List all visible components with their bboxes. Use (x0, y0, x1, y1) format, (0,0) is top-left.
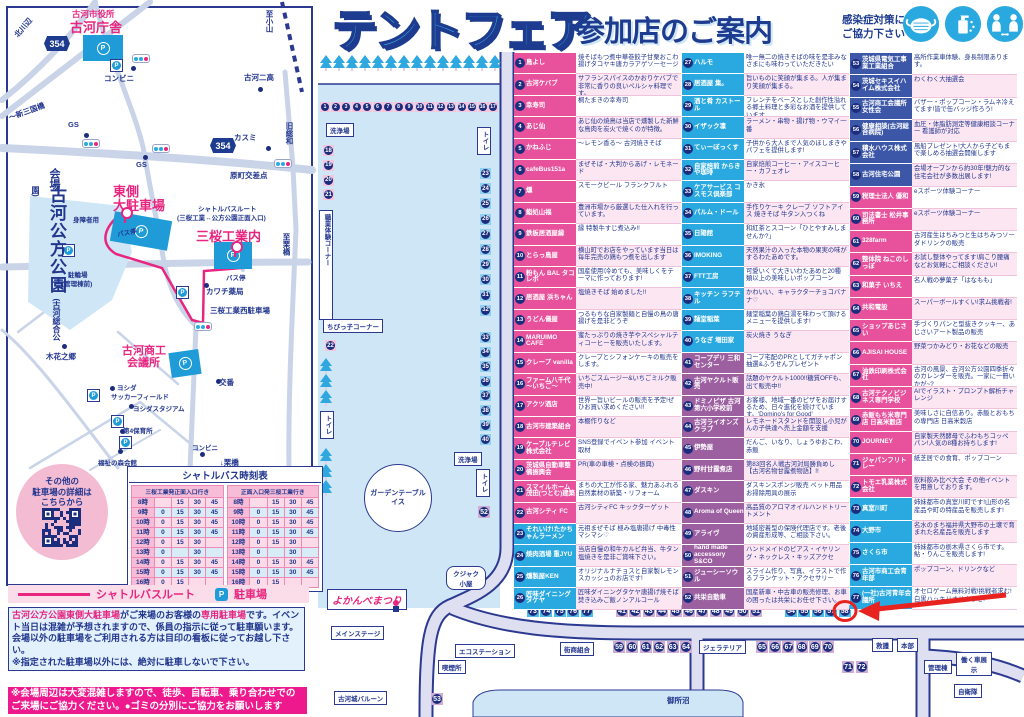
venue-label: 街商組合 (560, 642, 594, 656)
store-name-text: Aroma of Queen (694, 509, 744, 516)
store-name-text: 和菓子 いちえ (862, 283, 902, 290)
store-description: スモークビール フランクフルト (576, 181, 681, 202)
stall-marker: 3 (341, 102, 351, 112)
legend-parking-label: 駐車場 (234, 586, 267, 602)
store-name: 75さくら市 (850, 543, 912, 565)
store-name-text: ショップあじさい (862, 324, 912, 337)
timetable-minute: 15 (171, 517, 188, 527)
store-number-badge: 28 (683, 80, 693, 90)
timetable-minute: 15 (267, 567, 284, 577)
store-description: バザー・ポップコーン・ラムネ冷えてます!皆で缶バッジ作ろう! (912, 98, 1017, 120)
stall-marker: 31 (480, 290, 491, 301)
store-name-text: とらっ鳥屋 (526, 253, 558, 260)
store-row: 48Aroma of Queen高品質のアロマオイルハンドトリートメント (682, 503, 849, 524)
store-name: 7燻 (514, 181, 576, 202)
timetable-minute: 45 (301, 557, 318, 567)
timetable-minute: 30 (284, 497, 301, 507)
store-description: 匠味ダイニングタケヤ唐揚げ焼そば焚き込みご飯ノンアルコール (576, 588, 681, 609)
store-name-text: 居酒屋 集。 (694, 81, 728, 88)
venue-label: 洗浄場 (326, 123, 354, 137)
store-name-text: 油鉄印刷株式会社 (862, 369, 912, 382)
timetable-minute: 45 (205, 557, 222, 567)
timetable-hour: 13時 (132, 547, 154, 557)
store-name-text: 鉄板居酒屋縁 (526, 231, 564, 238)
timetable-minute: 15 (267, 507, 284, 517)
store-number-badge: 12 (515, 294, 525, 304)
timetable-minute: 45 (301, 527, 318, 537)
store-number-badge: 67 (851, 370, 861, 380)
store-name: 4あじ仙 (514, 117, 576, 138)
store-number-badge: 56 (851, 125, 861, 135)
timetable-minute: 30 (188, 547, 205, 557)
timetable-minute: 0 (154, 507, 171, 517)
store-row: 66AJISAI HOUSE野菜つかみどり・お花などの販売 (850, 342, 1017, 364)
timetable-row: 9時0153045 (132, 507, 223, 517)
store-description: 古河シティFC キックターゲット (576, 503, 681, 524)
timetable-minute (301, 547, 318, 557)
stall-marker: 35 (480, 361, 491, 372)
stall-marker: 25 (480, 198, 491, 209)
store-row: 39麺堂稲葉麺堂稲葉の鶏白湯を味わって頂けるメニューを提供します! (682, 310, 849, 331)
stall-marker: 60 (626, 641, 638, 653)
store-number-badge: 46 (683, 465, 693, 475)
store-row: 61328farm古河産生はちみつと生はちみつソーダドリンクの販売 (850, 231, 1017, 253)
store-description: かわいい、キャラクターチョコバナナ♡ (744, 288, 849, 309)
stall-marker: 37 (480, 390, 491, 401)
shuttle-bus-timetable: シャトルバス時刻表 三桜工業発正面入口行き8時1530459時015304510… (127, 466, 323, 592)
timetable-minute: 30 (188, 507, 205, 517)
qr-caption: その他の 駐車場の詳細は こちらから (32, 476, 92, 508)
store-number-badge: 73 (851, 504, 861, 514)
stall-marker: 22 (325, 340, 336, 351)
store-description: 姉妹都市の栃木県さくら市です。鮎・りんごを販売します! (912, 543, 1017, 565)
store-description: 子供から大人まで人気のほしまきやパフェを提供します! (744, 139, 849, 160)
store-name-text: 真室川町 (862, 506, 888, 513)
store-name-text: トモエ乳業株式会社 (862, 480, 912, 493)
store-name-text: 古河市建築組合 (526, 424, 571, 431)
store-name: 20茨城県自動車整備振興会 (514, 460, 576, 481)
stall-marker: 72 (856, 661, 868, 673)
store-number-badge: 8 (515, 208, 525, 218)
store-description: お客様、地域一番のピザをお届けするため、日々進化を続けています。'Domino'… (744, 396, 849, 417)
store-number-badge: 68 (851, 393, 861, 403)
store-description: あじ仙の焼鳥は当店で燻製した新鮮な鳥肉を炭火で焼くのが特徴。 (576, 117, 681, 138)
timetable-header: 正面入口発三桜工業行き (228, 486, 319, 497)
store-number-badge: 6 (515, 165, 525, 175)
store-name: 52共栄自動車 (682, 588, 744, 609)
timetable-minute (205, 537, 222, 547)
stall-marker: 71 (842, 661, 854, 673)
stall-marker: 69 (809, 641, 821, 653)
store-name: 12居酒屋 浜ちゃん (514, 288, 576, 309)
store-description: 高所作業車体験、身長制限あります。 (912, 53, 1017, 75)
store-description: かき氷 (744, 181, 849, 202)
store-description: 炭火焼き うなぎ (744, 331, 849, 352)
timetable-minute (267, 547, 284, 557)
store-number-badge: 4 (515, 122, 525, 132)
store-number-badge: 75 (851, 548, 861, 558)
timetable-hour: 12時 (228, 537, 250, 547)
store-name: 65ショップあじさい (850, 320, 912, 342)
store-number-badge: 3 (515, 101, 525, 111)
timetable-minute: 0 (154, 567, 171, 577)
stall-marker: 40 (480, 434, 491, 445)
store-number-badge: 63 (851, 281, 861, 291)
store-name: 59税理士法人 優和 (850, 187, 912, 209)
store-description: お試し整体やってます!肩こり腰痛などお気軽にご相談ください! (912, 253, 1017, 275)
store-number-badge: 64 (851, 304, 861, 314)
store-description: 古河の風景、古河公方公園四季折々のカレンダーを販売。一家に一冊いかが~? (912, 365, 1017, 387)
store-name-text: 古河市商工会青年部 (862, 569, 912, 582)
poi-dot (266, 146, 271, 151)
store-name: 34パルム・ドール (682, 203, 744, 224)
timetable-row: 11時0153045 (132, 527, 223, 537)
store-name-text: てぃーぼっくす (694, 145, 739, 152)
crowd-note: ※会場周辺は大変混雑しますので、徒歩、自転車、乗り合わせでの ご来場にご協力くだ… (8, 687, 307, 714)
venue-label: 自衛隊 (954, 684, 982, 698)
store-number-badge: 9 (515, 229, 525, 239)
store-number-badge: 37 (683, 272, 693, 282)
venue-label: 職業体験コーナー (319, 210, 333, 320)
stall-marker: 8 (394, 102, 404, 112)
store-description: 麺堂稲葉の鶏白湯を味わって頂けるメニューを提供します! (744, 310, 849, 331)
stall-marker: 23 (480, 168, 491, 179)
store-row: 18古河市建築組合本棚作りなど (514, 417, 681, 438)
store-name: 68古河テクノビジネス専門学校 (850, 387, 912, 409)
timetable-minute: 15 (171, 507, 188, 517)
store-name: 45伊勢屋 (682, 438, 744, 459)
timetable-row: 15時0153045 (132, 567, 223, 577)
store-description: フレンチをベースとした創作性溢れる郷土料理と多彩なお酒を提供しています (744, 96, 849, 117)
store-description: SNS登録でイベント参加 イベント取材 (576, 438, 681, 459)
store-description: レモネードスタンドを開設し小児がんの子供達へ売上金額を支援 (744, 417, 849, 438)
store-description: オセロゲーム無料対戦!挑戦者求む!白黒ハッキリさせようぜ! (912, 587, 1017, 609)
timetable-minute: 30 (284, 567, 301, 577)
timetable-row: 13時030 (132, 547, 223, 557)
timetable-minute: 30 (284, 517, 301, 527)
store-name: 37FTT工房 (682, 267, 744, 288)
stall-marker: 29 (480, 259, 491, 270)
timetable-hour: 8時 (132, 497, 154, 507)
timetable-minute: 45 (205, 567, 222, 577)
venue-label: 古河城バルーン (334, 691, 387, 705)
timetable-minute: 45 (301, 567, 318, 577)
timetable-minute: 0 (249, 507, 266, 517)
timetable-hour: 11時 (228, 527, 250, 537)
venue-label: 救護 (872, 638, 893, 652)
timetable-minute: 0 (249, 517, 266, 527)
map-legend: シャトルバスルート P 駐車場 (8, 585, 309, 603)
store-number-badge: 42 (683, 379, 693, 389)
store-name: 71ジャパンフリトレー (850, 454, 912, 476)
stall-marker: 17 (488, 102, 498, 112)
stall-marker: 19 (323, 160, 334, 171)
store-description: つるもちな自家製麺と自慢の鳥の唐揚げを是非どうぞ (576, 310, 681, 331)
store-number-badge: 60 (851, 214, 861, 224)
store-description: 美味しさに自信あり。赤飯とおもちの専門店 日高米穀店 (912, 409, 1017, 431)
store-name: 13うどん儀屋 (514, 310, 576, 331)
store-name-text: 積水ハウス株式会社 (862, 146, 912, 159)
store-description: 焼そばもつ煮中華巻餃子甘栗おこわ揚げタコヤキ唐カラアゲソーセージ (576, 53, 681, 74)
traffic-signal-icon (152, 144, 170, 153)
store-row: 19ケーブルテレビ株式会社SNS登録でイベント参加 イベント取材 (514, 438, 681, 459)
timetable-title: シャトルバス時刻表 (129, 468, 321, 483)
store-name: 67油鉄印刷株式会社 (850, 365, 912, 387)
store-description: eスポーツ体験コーナー (912, 209, 1017, 231)
store-name-text: 焼肉酒場 重JYU (526, 552, 572, 559)
store-name-text: アライヴ (694, 531, 720, 538)
timetable-minute (249, 497, 266, 507)
store-row: 64共和電設スーパーボールすくい!求ム挑戦者! (850, 298, 1017, 320)
timetable-minute: 0 (249, 557, 266, 567)
store-row: 59税理士法人 優和eスポーツ体験コーナー (850, 187, 1017, 209)
festival-mascot (393, 600, 399, 613)
store-name: 25燻製屋KEN (514, 567, 576, 588)
store-description: クレープとシフォンケーキの販売をします。 (576, 353, 681, 374)
timetable-row: 15時0153045 (228, 567, 319, 577)
store-name-text: MARUIMO CAFE (526, 335, 576, 348)
store-name-text: 古河ヤクルト販売 (694, 378, 744, 391)
timetable-minute: 30 (188, 567, 205, 577)
timetable-hour: 10時 (132, 517, 154, 527)
store-description: 自家焙煎コーヒー・アイスコーヒー・カフェオレ (744, 160, 849, 181)
stall-marker: 61 (640, 641, 652, 653)
timetable-minute (205, 547, 222, 557)
store-name: 42古河ヤクルト販売 (682, 374, 744, 395)
store-name: 21スマイルホーム茂田(つとむ)建築 (514, 481, 576, 502)
store-name: 39麺堂稲葉 (682, 310, 744, 331)
store-description: 風船プレゼント!大人から子どもまで楽しめる抽選会開催します (912, 142, 1017, 164)
store-name: 43ドミノピザ 古河第六小学校前 (682, 396, 744, 417)
store-name: 26匠味ダイニングタケヤ (514, 588, 576, 609)
store-name: 6cafeBus151a (514, 160, 576, 181)
store-row: 2古河ケバブサフランスパイスのかおりケバブで非常に香りの良いペルシャ料理です。 (514, 74, 681, 95)
store-row: 77(一社)古河青年会議所オセロゲーム無料対戦!挑戦者求む!白黒ハッキリさせよう… (850, 587, 1017, 609)
store-row: 45伊勢屋だんご、いなり、しょうゆおこわ、赤飯 (682, 438, 849, 459)
store-number-badge: 18 (515, 422, 525, 432)
stall-marker: 27 (480, 229, 491, 240)
store-number-badge: 7 (515, 187, 525, 197)
store-name-text: AJISAI HOUSE (862, 350, 907, 357)
timetable-row: 14時0153045 (132, 557, 223, 567)
store-name: 27ハルモ (682, 53, 744, 74)
store-description: オリジナルナチョスと自家製レモンスカッシュのお店です! (576, 567, 681, 588)
stall-marker: 70 (822, 641, 834, 653)
timetable-minute: 30 (284, 547, 301, 557)
timetable-hour: 15時 (228, 567, 250, 577)
store-description: スーパーボールすくい!求ム挑戦者! (912, 298, 1017, 320)
store-name-text: 居酒屋 浜ちゃん (526, 295, 573, 302)
store-name-text: あじ仙 (526, 124, 545, 131)
store-row: 50hand made accessory S&COハンドメイドのピアス・イヤリ… (682, 545, 849, 566)
timetable-minute (154, 497, 171, 507)
store-number-badge: 44 (683, 422, 693, 432)
page-subtitle: 参加店のご案内 (576, 8, 772, 50)
store-description: 名水のまち福井県大野市の土壌で育まれた名産品を販売します (912, 521, 1017, 543)
store-name-text: 大野市 (862, 528, 881, 535)
traffic-signal-icon (82, 139, 100, 148)
store-number-badge: 47 (683, 486, 693, 496)
store-name: 28居酒屋 集。 (682, 74, 744, 95)
store-description: 姉妹都市の真室川町です!山形の名産品や町の特産品を販売します! (912, 498, 1017, 520)
store-row: 54茨城セキスイハイム株式会社わくわく大抽選会 (850, 75, 1017, 97)
store-name: 11粉もん BAL タコレボ (514, 267, 576, 288)
store-description: 第83回名人戦古河対局勝負めし【古河名物甘露煮物語】!! (744, 460, 849, 481)
map-label: 交番 (219, 377, 234, 388)
store-name: 60司法書士 松井事務所 (850, 209, 912, 231)
stall-marker: 34 (480, 347, 491, 358)
store-name: 61328farm (850, 231, 912, 253)
store-row: 69赤飯もち米専門店 日高米穀店美味しさに自信あり。赤飯とおもちの専門店 日高米… (850, 409, 1017, 431)
store-description: 会場オープンから約30年!魅力的な住宅会社が多数出展します! (912, 164, 1017, 186)
store-description: スライム作り、写真、イラストで作るブランケット・アクセサリー (744, 567, 849, 588)
venue-label: ちびっ子コーナー (323, 319, 383, 333)
map-label: 原町交差点 (230, 170, 268, 181)
timetable-hour: 10時 (228, 517, 250, 527)
qr-code (42, 508, 82, 548)
stall-marker: 32 (480, 305, 491, 316)
page-title: テントフェア (332, 0, 590, 59)
venue-label: ジェラテリア (699, 640, 746, 654)
timetable-half: 三桜工業発正面入口行き8時1530459時015304510時015304511… (131, 485, 224, 588)
store-row: 56健康相談(古河総合病院)血圧・体脂肪測定等健康相談コーナー 看護師が対応 (850, 120, 1017, 142)
timetable-row: 14時0153045 (228, 557, 319, 567)
store-number-badge: 2 (515, 80, 525, 90)
store-name-text: 茨城県自動車整備振興会 (526, 463, 576, 476)
timetable-hour: 8時 (228, 497, 250, 507)
timetable-minute (171, 547, 188, 557)
store-name-text: それいけ!たかちゃんラーメン (526, 527, 576, 540)
store-number-badge: 27 (683, 58, 693, 68)
timetable-minute: 30 (188, 557, 205, 567)
stall-marker: 5 (362, 102, 372, 112)
stall-marker: 9 (404, 102, 414, 112)
store-name: 15クレープ vanilla (514, 353, 576, 374)
stall-marker: 26 (480, 214, 491, 225)
store-description: いちごスムージー&いちごミルク販売中! (576, 374, 681, 395)
store-name-text: ドミノピザ 古河第六小学校前 (694, 399, 744, 412)
store-number-badge: 10 (515, 251, 525, 261)
stall-marker: 39 (480, 420, 491, 431)
store-name: 70JOURNEY (850, 432, 912, 454)
traffic-signal-icon (274, 159, 292, 168)
venue-label: メインステージ (331, 626, 384, 640)
store-number-badge: 55 (851, 103, 861, 113)
store-row: 14MARUIMO CAFE蜜たっぷりの焼き芋やスペシャルティコーヒーを販売いた… (514, 331, 681, 352)
store-name-text: JOURNEY (862, 439, 893, 446)
store-name-text: 鳥よし (526, 60, 545, 67)
timetable-minute: 15 (267, 527, 284, 537)
store-name-text: 共栄自動車 (694, 595, 726, 602)
store-name: 14MARUIMO CAFE (514, 331, 576, 352)
poi-dot (118, 449, 123, 454)
store-number-badge: 71 (851, 459, 861, 469)
store-name-text: 茨城セキスイハイム株式会社 (862, 79, 912, 92)
parking-icon: P (119, 436, 132, 449)
store-row: 43ドミノピザ 古河第六小学校前お客様、地域一番のピザをお届けするため、日々進化… (682, 396, 849, 417)
store-name: 49アライヴ (682, 524, 744, 545)
store-name-text: 日陽館 (694, 231, 713, 238)
store-name: 55古河商工会議所女性会 (850, 98, 912, 120)
map-label: 木花之郷 (46, 351, 76, 362)
store-description: だんご、いなり、しょうゆおこわ、赤飯 (744, 438, 849, 459)
timetable-minute: 45 (301, 497, 318, 507)
timetable-minute: 0 (154, 527, 171, 537)
store-name-text: うなぎ 増田家 (694, 338, 734, 345)
store-description: まちの大工が作る家、魅力あふれる自然素材の新築・リフォーム (576, 481, 681, 502)
store-name: 53茨城県電気工事業工業組合 (850, 53, 912, 75)
store-row: 27ハルモ唯一無二の焼きそばの味を是非みなさまにも味わっていただきたい (682, 53, 849, 74)
stall-marker: 24 (480, 183, 491, 194)
store-row: 65ショップあじさい手づくりパンと型抜きクッキー、あじさいアート製品の販売 (850, 320, 1017, 342)
store-name-text: ダスキン (694, 488, 719, 495)
store-description: 元祖まぜそば 極み塩唐揚げ 中毒性マシマシ♡ (576, 524, 681, 545)
store-number-badge: 21 (515, 486, 525, 496)
store-name-text: 酒と肴 カストール (694, 99, 744, 112)
store-name-text: 税理士法人 優和 (862, 194, 909, 201)
store-description: 横山町でお店をやっています当日は毎年完売の鶏もつ煮を出します (576, 246, 681, 267)
store-row: 75さくら市姉妹都市の栃木県さくら市です。鮎・りんごを販売します! (850, 543, 1017, 565)
store-number-badge: 53 (851, 59, 861, 69)
timetable-minute: 0 (249, 527, 266, 537)
store-number-badge: 35 (683, 229, 693, 239)
store-number-badge: 70 (851, 437, 861, 447)
store-description: サフランスパイスのかおりケバブで非常に香りの良いペルシャ料理です。 (576, 74, 681, 95)
store-name-text: FTT工房 (694, 274, 719, 281)
store-number-badge: 13 (515, 315, 525, 325)
store-name: 66AJISAI HOUSE (850, 342, 912, 364)
store-description: AIでイラスト・プロンプト解析チャレンジ (912, 387, 1017, 409)
store-number-badge: 38 (683, 294, 693, 304)
store-description: ポップコーン、ドリンクなど (912, 565, 1017, 587)
timetable-hour: 14時 (228, 557, 250, 567)
store-number-badge: 54 (851, 81, 861, 91)
store-name: 33ケアサービス コスモス倶楽部 (682, 181, 744, 202)
stall-marker: 63 (667, 641, 679, 653)
timetable-minute: 0 (249, 537, 266, 547)
store-name-text: さくら市 (862, 550, 888, 557)
store-row: 67油鉄印刷株式会社古河の風景、古河公方公園四季折々のカレンダーを販売。一家に一… (850, 365, 1017, 387)
map-label: (三桜工業↔公方公園正面入口) (177, 212, 266, 222)
store-description: 本棚作りなど (576, 417, 681, 438)
parking-icon: P (87, 389, 100, 402)
store-name-text: 赤飯もち米専門店 日高米穀店 (862, 413, 912, 426)
store-number-badge: 69 (851, 415, 861, 425)
store-name: 1鳥よし (514, 53, 576, 74)
timetable-hour: 9時 (132, 507, 154, 517)
stall-marker: 13 (446, 102, 456, 112)
store-name: 10とらっ鳥屋 (514, 246, 576, 267)
timetable-minute: 15 (267, 537, 284, 547)
store-number-badge: 50 (683, 551, 693, 561)
store-number-badge: 66 (851, 348, 861, 358)
store-description: 桐たまきの幸寿司 (576, 96, 681, 117)
store-row: 34パルム・ドール手作りケーキ クレープ ソフトアイス 焼きそば 牛タン入つくね (682, 203, 849, 224)
store-name: 30イザック凛 (682, 117, 744, 138)
store-row: 21スマイルホーム茂田(つとむ)建築まちの大工が作る家、魅力あふれる自然素材の新… (514, 481, 681, 502)
store-name: 57積水ハウス株式会社 (850, 142, 912, 164)
store-row: 37FTT工房可愛いくて大きいわたあめと20種類以上の美味しいポップコーン (682, 267, 849, 288)
store-name-text: かねふじ (526, 145, 552, 152)
store-number-badge: 23 (515, 529, 525, 539)
stall-marker: 1 (320, 102, 330, 112)
store-row: 47ダスキンダスキンスポンジ販売 ペット用品お掃除用具の展示 (682, 481, 849, 502)
timetable-hour: 9時 (228, 507, 250, 517)
store-name: 50hand made accessory S&CO (682, 545, 744, 566)
timetable-minute: 0 (154, 557, 171, 567)
map-label: コンビニ (104, 73, 134, 84)
parking-icon: P (215, 588, 228, 601)
